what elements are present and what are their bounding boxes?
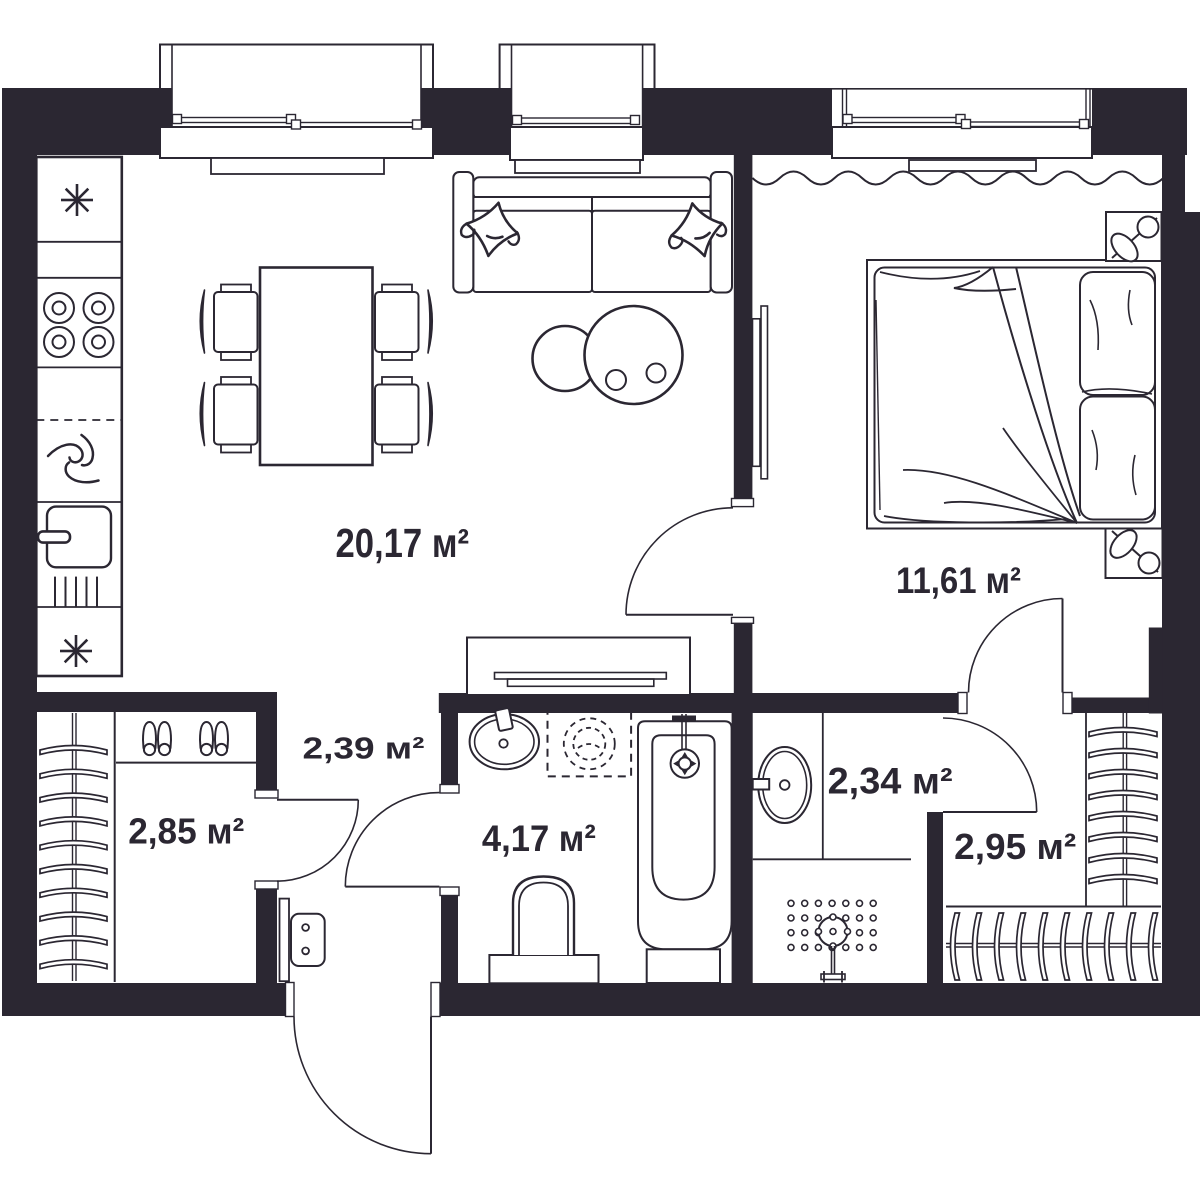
svg-text:4,17 м²: 4,17 м² [482,817,596,859]
svg-text:11,61 м²: 11,61 м² [896,559,1021,601]
svg-text:2,39 м²: 2,39 м² [303,731,425,766]
svg-text:20,17 м²: 20,17 м² [336,520,470,566]
svg-text:2,95 м²: 2,95 м² [954,826,1076,867]
svg-text:2,85 м²: 2,85 м² [128,812,244,852]
svg-text:2,34 м²: 2,34 м² [828,761,953,802]
